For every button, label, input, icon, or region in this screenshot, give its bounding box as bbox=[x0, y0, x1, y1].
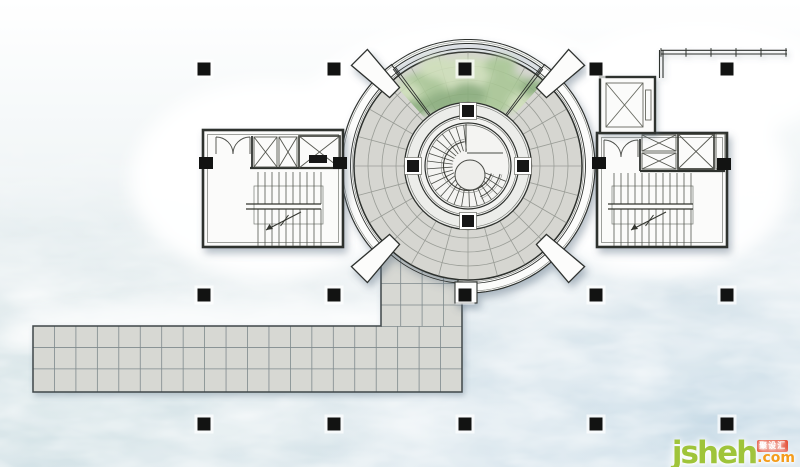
wall-column bbox=[717, 158, 731, 170]
column bbox=[590, 289, 603, 302]
plan-drawing bbox=[0, 0, 800, 467]
column bbox=[721, 63, 734, 76]
column bbox=[198, 63, 211, 76]
planting-blob bbox=[420, 57, 456, 79]
column bbox=[721, 289, 734, 302]
wall-column bbox=[199, 157, 213, 169]
planting-blob bbox=[484, 56, 516, 76]
column bbox=[459, 63, 472, 76]
logo-tld-text: .com bbox=[757, 453, 795, 465]
wall-column bbox=[333, 157, 347, 169]
spiral-eye bbox=[455, 160, 485, 190]
room-left-walls bbox=[203, 130, 343, 247]
wall-column bbox=[592, 157, 606, 169]
column bbox=[328, 63, 341, 76]
column bbox=[198, 289, 211, 302]
ring-column bbox=[517, 160, 529, 172]
stair-room-right bbox=[597, 133, 727, 247]
shaft-beam-left bbox=[309, 155, 327, 163]
ring-column bbox=[462, 215, 474, 227]
column bbox=[328, 418, 341, 431]
logo-brand-text: jsheh bbox=[672, 441, 756, 465]
ring-column bbox=[407, 160, 419, 172]
watermark-logo[interactable]: jsheh 聚设汇 .com bbox=[672, 440, 795, 465]
column bbox=[721, 418, 734, 431]
column bbox=[459, 289, 472, 302]
column bbox=[328, 289, 341, 302]
column bbox=[198, 418, 211, 431]
room-right-walls bbox=[597, 133, 727, 247]
column bbox=[590, 63, 603, 76]
logo-right-stack: 聚设汇 .com bbox=[757, 440, 795, 465]
column bbox=[459, 418, 472, 431]
column bbox=[590, 418, 603, 431]
ring-column bbox=[462, 105, 474, 117]
floor-plan-canvas: jsheh 聚设汇 .com bbox=[0, 0, 800, 467]
elevator-shaft-topright bbox=[600, 77, 655, 133]
stair-room-left bbox=[203, 130, 343, 247]
circular-hall bbox=[341, 40, 595, 304]
